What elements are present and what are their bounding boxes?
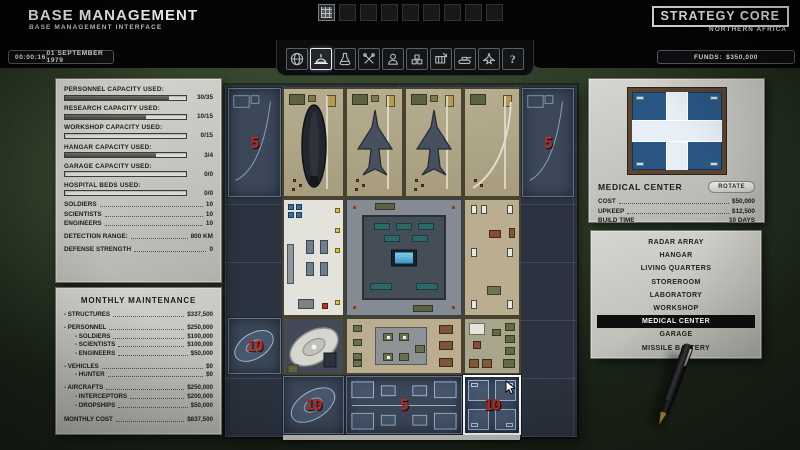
upkeep-row: UPKEEP$12,500 [598, 208, 755, 215]
tile-laboratory[interactable] [282, 198, 345, 317]
capacity-bar [64, 114, 187, 120]
supply-pad [352, 94, 368, 105]
cost-row: COST$50,000 [598, 198, 755, 205]
maintenance-row: - INTERCEPTORS$200,000 [64, 393, 213, 400]
stat-value: 10/15 [187, 113, 213, 120]
base-dome-icon [313, 51, 329, 67]
tile-mess-hall[interactable] [345, 317, 463, 375]
roster-row: ENGINEERS10 [64, 220, 213, 227]
stat-value: 0/0 [187, 190, 213, 197]
container-arrow-icon [433, 51, 449, 67]
tile-hangar-empty[interactable] [463, 87, 521, 198]
maintenance-row: - AIRCRAFTS$250,000 [64, 384, 213, 391]
list-item-medical-center[interactable]: MEDICAL CENTER [597, 315, 755, 328]
capacity-bar [64, 133, 187, 139]
region-label: NORTHERN AFRICA [709, 26, 787, 33]
tile-command-center[interactable] [345, 198, 463, 317]
tile-radar-under-construction-west[interactable]: 10 [227, 317, 282, 375]
personnel-button[interactable] [382, 48, 404, 70]
monthly-cost-row: MONTHLY COST$837,500 [64, 416, 213, 423]
list-item-workshop[interactable]: WORKSHOP [597, 302, 755, 315]
rotate-button[interactable]: ROTATE [708, 181, 755, 193]
stat-value: 0/15 [187, 132, 213, 139]
list-item-radar-array[interactable]: RADAR ARRAY [597, 236, 755, 249]
tile-medical-center-placement[interactable]: 10 [463, 375, 521, 435]
question-icon: ? [510, 52, 516, 67]
roster-row: SOLDIERS10 [64, 201, 213, 208]
capacity-bar [64, 152, 187, 158]
aircraft-icon [481, 51, 497, 67]
tile-hangar-zeppelin[interactable] [282, 87, 345, 198]
build-info-panel: MEDICAL CENTER ROTATE COST$50,000 UPKEEP… [588, 78, 765, 223]
clock-value: 00:00:16 [15, 54, 46, 61]
construction-days: 10 [484, 396, 500, 414]
maintenance-row: - SCIENTISTS$100,000 [64, 341, 213, 348]
tile-storeroom-east[interactable] [463, 317, 521, 375]
detection-range-row: DETECTION RANGE:800 KM [64, 233, 213, 240]
base-slot[interactable] [339, 4, 356, 21]
crates-icon [409, 51, 425, 67]
base-slot[interactable] [402, 4, 419, 21]
roster-row: SCIENTISTS10 [64, 211, 213, 218]
maintenance-row: - SOLDIERS$100,000 [64, 333, 213, 340]
base-slot[interactable] [381, 4, 398, 21]
stat-value: 3/4 [187, 152, 213, 159]
flask-icon [337, 51, 353, 67]
zeppelin-icon [299, 102, 329, 190]
base-slot[interactable] [423, 4, 440, 21]
tile-radar-under-construction-south[interactable]: 10 [282, 375, 345, 435]
tile-hangar-interceptor-2[interactable] [404, 87, 463, 198]
funds-label: FUNDS: [694, 54, 722, 61]
cross-corridor [632, 120, 722, 142]
capacity-bar [64, 95, 187, 101]
screen: 5 [0, 0, 800, 450]
medical-center-preview [632, 92, 722, 170]
page-subtitle: BASE MANAGEMENT INTERFACE [29, 24, 162, 31]
stat-value: 0/0 [187, 171, 213, 178]
maintenance-row: - ENGINEERS$50,000 [64, 350, 213, 357]
funds-pill: FUNDS: $350,000 [657, 50, 795, 64]
base-thumbnail-icon [321, 7, 332, 18]
base-slot[interactable] [444, 4, 461, 21]
base-slot-active[interactable] [318, 4, 335, 21]
grid-bottom-edge [283, 435, 520, 440]
stat-label: GARAGE CAPACITY USED: [64, 163, 213, 170]
tile-radar-array[interactable] [282, 317, 345, 375]
aircraft-button[interactable] [478, 48, 500, 70]
base-slot[interactable] [360, 4, 377, 21]
workshop-button[interactable] [358, 48, 380, 70]
stat-label: RESEARCH CAPACITY USED: [64, 105, 213, 112]
capacity-bar [64, 171, 187, 177]
maintenance-row: - PERSONNEL$250,000 [64, 324, 213, 331]
stat-label: HANGAR CAPACITY USED: [64, 144, 213, 151]
command-core [362, 215, 446, 300]
structure-preview-frame [627, 87, 727, 175]
barrel [292, 188, 295, 191]
barrel [414, 188, 417, 191]
panel-title: MONTHLY MAINTENANCE [64, 296, 213, 305]
list-item-storeroom[interactable]: STOREROOM [597, 276, 755, 289]
base-stats-panel: PERSONNEL CAPACITY USED: 30/35 RESEARCH … [55, 78, 222, 283]
page-title: BASE MANAGEMENT [28, 7, 198, 24]
crate [430, 95, 438, 102]
tile-hangar-under-construction-east[interactable]: 5 [521, 87, 575, 198]
storage-button[interactable] [406, 48, 428, 70]
capacity-bar [64, 190, 187, 196]
crossed-tools-icon [361, 51, 377, 67]
list-item-living-quarters[interactable]: LIVING QUARTERS [597, 262, 755, 275]
barrel [293, 179, 296, 182]
tile-hangar-under-construction-west[interactable]: 5 [227, 87, 282, 198]
monthly-maintenance-panel: MONTHLY MAINTENANCE - STRUCTURES$337,500… [55, 287, 222, 435]
list-item-hangar[interactable]: HANGAR [597, 249, 755, 262]
transfer-button[interactable] [430, 48, 452, 70]
stat-label: HOSPITAL BEDS USED: [64, 182, 213, 189]
barrel [355, 188, 358, 191]
tile-living-quarters-east[interactable] [463, 198, 521, 317]
clock-pill: 00:00:16 01 SEPTEMBER 1979 [8, 50, 114, 64]
radar-dish-icon [284, 319, 345, 375]
game-mode-label: STRATEGY CORE [652, 6, 790, 27]
maintenance-row: - HUNTER$0 [64, 371, 213, 378]
base-slot-strip [318, 4, 503, 21]
vehicles-button[interactable] [454, 48, 476, 70]
construction-days: 5 [544, 134, 552, 152]
construction-days: 10 [305, 396, 321, 414]
base-grid[interactable]: 5 [225, 85, 577, 437]
construction-days: 5 [250, 134, 258, 152]
main-toolbar: ? [286, 48, 524, 70]
base-slot[interactable] [465, 4, 482, 21]
tile-hangar-interceptor-1[interactable] [345, 87, 404, 198]
tactical-screen [391, 249, 417, 266]
construction-days: 5 [400, 396, 408, 414]
tank-icon [456, 51, 473, 67]
defense-strength-row: DEFENSE STRENGTH0 [64, 246, 213, 253]
crate [371, 95, 379, 102]
stat-label: WORKSHOP CAPACITY USED: [64, 124, 213, 131]
taxiway-line [467, 96, 517, 196]
stat-value: 30/35 [187, 94, 213, 101]
structure-name: MEDICAL CENTER [598, 182, 682, 192]
mouse-cursor-icon [505, 380, 516, 395]
funds-value: $350,000 [726, 54, 758, 61]
fighter-jet-icon [355, 107, 395, 185]
globe-icon [289, 51, 305, 67]
base-slot[interactable] [486, 4, 503, 21]
tile-living-quarters-under-construction-south[interactable]: 5 [345, 375, 463, 435]
list-item-laboratory[interactable]: LABORATORY [597, 289, 755, 302]
maintenance-row: - DROPSHIPS$50,000 [64, 402, 213, 409]
geoscape-button[interactable] [286, 48, 308, 70]
build-time-row: BUILD TIME10 DAYS [598, 217, 755, 224]
stat-label: PERSONNEL CAPACITY USED: [64, 86, 213, 93]
fighter-jet-icon [414, 107, 454, 185]
help-button[interactable]: ? [502, 48, 524, 70]
supply-pad [411, 94, 427, 105]
person-icon [385, 51, 401, 67]
maintenance-row: - VEHICLES$0 [64, 363, 213, 370]
research-button[interactable] [334, 48, 356, 70]
construction-days: 10 [246, 337, 262, 355]
maintenance-row: - STRUCTURES$337,500 [64, 311, 213, 318]
date-value: 01 SEPTEMBER 1979 [47, 50, 107, 64]
base-view-button[interactable] [310, 48, 332, 70]
